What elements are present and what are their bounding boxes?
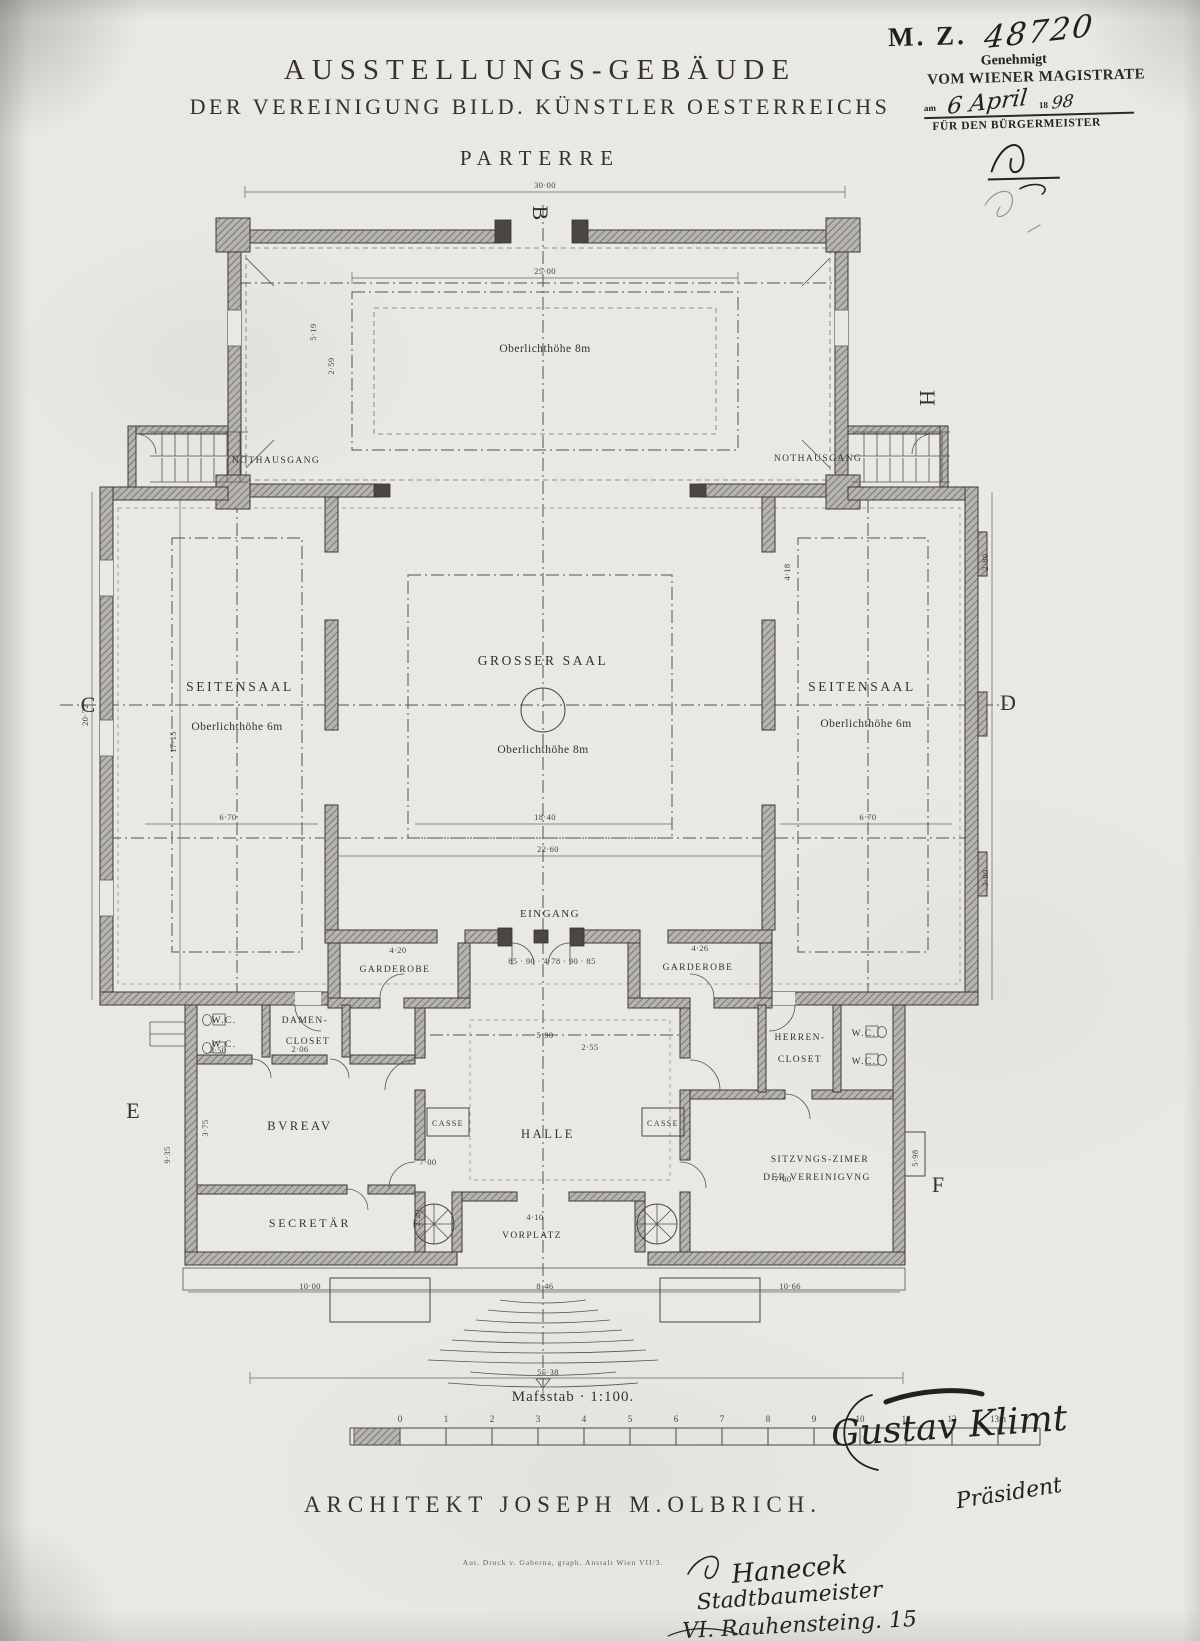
dimension-label: 8·46 bbox=[536, 1281, 553, 1291]
stamp-date-line: am 6 April 18 98 bbox=[924, 86, 1135, 119]
dimension-label: 2·06 bbox=[291, 1044, 308, 1054]
dimension-label: 4·18 bbox=[782, 563, 792, 580]
stamp-date-prefix: am bbox=[924, 103, 936, 113]
marker-d: D bbox=[1000, 690, 1016, 715]
grosser-saal-height-label: Oberlichthöhe 8m bbox=[497, 744, 588, 756]
wc-label: W.C. bbox=[212, 1016, 237, 1026]
centerlines bbox=[60, 205, 1008, 1385]
dimension-label: 5·19 bbox=[308, 323, 318, 340]
stamp-authority: VOM WIENER MAGISTRATE bbox=[927, 65, 1199, 89]
seitensaal-left-label: SEITENSAAL bbox=[186, 679, 294, 694]
dimension-label: 5·98 bbox=[910, 1149, 920, 1166]
builder-flourish bbox=[688, 1556, 718, 1578]
dimension-label: 9·35 bbox=[162, 1146, 172, 1163]
architect-credit: ARCHITEKT JOSEPH M.OLBRICH. bbox=[304, 1492, 822, 1517]
dimension-label: 85 · 90 · 4·78 · 90 · 85 bbox=[508, 956, 596, 966]
scale-tick-number: 0 bbox=[398, 1414, 403, 1424]
seitensaal-left-height-label: Oberlichthöhe 6m bbox=[191, 721, 282, 733]
wc-label: W.C. bbox=[852, 1029, 877, 1039]
damen-closet-label-1: DAMEN- bbox=[282, 1016, 328, 1026]
dimension-label: 7·00 bbox=[419, 1157, 436, 1167]
casse-left-label: CASSE bbox=[432, 1119, 464, 1128]
scale-tick-number: 7 bbox=[720, 1414, 725, 1424]
dimension-labels: 30·0025·005·192·5920·7217·1518·406·706·7… bbox=[80, 180, 990, 1377]
grosser-saal-label: GROSSER SAAL bbox=[478, 653, 609, 668]
garderobe-right-label: GARDEROBE bbox=[663, 963, 734, 973]
dimension-label: 55·38 bbox=[537, 1367, 559, 1377]
dimension-label: 22·60 bbox=[537, 844, 559, 854]
dimension-label: 4·26 bbox=[691, 943, 708, 953]
dimension-label: 5·90 bbox=[536, 1030, 553, 1040]
printer-imprint: Aut. Druck v. Gaberna, graph. Anstalt Wi… bbox=[463, 1558, 663, 1567]
scale-tick-number: 1 bbox=[444, 1414, 449, 1424]
dimension-label: 25·00 bbox=[534, 266, 556, 276]
stamp-year-handwritten: 98 bbox=[1051, 91, 1075, 113]
seitensaal-right-label: SEITENSAAL bbox=[808, 679, 916, 694]
scale-tick-number: 4 bbox=[582, 1414, 587, 1424]
stamp-date-handwritten: 6 April bbox=[946, 85, 1028, 120]
dimension-lines bbox=[92, 186, 992, 1384]
dimension-label: 2·20 bbox=[412, 1209, 422, 1226]
scale-label: Mafsstab · 1:100. bbox=[512, 1389, 634, 1405]
dimension-label: 18·40 bbox=[534, 812, 556, 822]
dimension-label: 10·66 bbox=[779, 1281, 801, 1291]
approval-stamp: M. Z. 48720 Genehmigt VOM WIENER MAGISTR… bbox=[888, 10, 1200, 207]
vorplatz-label: VORPLATZ bbox=[502, 1231, 562, 1241]
dimension-label: 10·00 bbox=[299, 1281, 321, 1291]
wc-label: W.C. bbox=[852, 1057, 877, 1067]
scale-tick-number: 5 bbox=[628, 1414, 633, 1424]
nothausgang-left-label: NOTHAUSGANG bbox=[232, 456, 320, 466]
dimension-label: 30·00 bbox=[534, 180, 556, 190]
dimension-label: 20·72 bbox=[80, 704, 90, 726]
scale-tick-number: 3 bbox=[536, 1414, 541, 1424]
marker-h: H bbox=[915, 390, 940, 406]
nothausgang-right-label: NOTHAUSGANG bbox=[774, 454, 862, 464]
garderobe-left-label: GARDEROBE bbox=[360, 965, 431, 975]
secretaer-label: SECRETÄR bbox=[269, 1216, 351, 1230]
dimension-label: 6·70 bbox=[859, 812, 876, 822]
dimension-label: 17·15 bbox=[168, 731, 178, 753]
scale-tick-number: 6 bbox=[674, 1414, 679, 1424]
casse-right-label: CASSE bbox=[647, 1119, 679, 1128]
dimension-label: 3·80 bbox=[980, 869, 990, 886]
dimension-label: 3·75 bbox=[200, 1119, 210, 1136]
dimension-label: 7·00 bbox=[774, 1174, 791, 1184]
stamp-number-handwritten: 48720 bbox=[982, 8, 1095, 56]
klimt-topbar bbox=[886, 1391, 982, 1402]
klimt-title: Präsident bbox=[953, 1473, 1064, 1515]
stamp-code: M. Z. bbox=[888, 20, 968, 52]
dimension-label: 2·80 bbox=[980, 553, 990, 570]
sitzungszimmer-label-1: SITZVNGS-ZIMER bbox=[771, 1155, 869, 1165]
dimension-label: 2·55 bbox=[581, 1042, 598, 1052]
official-signature bbox=[979, 133, 1091, 200]
seitensaal-right-height-label: Oberlichthöhe 6m bbox=[820, 718, 911, 730]
dimension-label: 2·59 bbox=[326, 357, 336, 374]
bureau-label: BVREAV bbox=[267, 1119, 332, 1133]
dimension-label: 2·50 bbox=[209, 1045, 226, 1055]
dimension-label: 4·20 bbox=[389, 945, 406, 955]
klimt-signature: Gustav Klimt bbox=[830, 1398, 1069, 1455]
scale-tick-number: 2 bbox=[490, 1414, 495, 1424]
scale-tick-number: 8 bbox=[766, 1414, 771, 1424]
top-hall-skylight-label: Oberlichthöhe 8m bbox=[499, 343, 590, 355]
marker-b: B bbox=[528, 206, 553, 221]
herren-closet-label-2: CLOSET bbox=[778, 1055, 822, 1065]
dimension-label: 4·10 bbox=[526, 1212, 543, 1222]
marker-e: E bbox=[126, 1098, 139, 1123]
stamp-year-print: 18 bbox=[1039, 100, 1048, 110]
marker-f: F bbox=[932, 1172, 944, 1197]
halle-label: HALLE bbox=[521, 1127, 575, 1141]
floor-plan-svg: Oberlichthöhe 8m NOTHAUSGANG NOTHAUSGANG… bbox=[0, 0, 1200, 1641]
eingang-label: EINGANG bbox=[520, 908, 580, 920]
scale-tick-number: 9 bbox=[812, 1414, 817, 1424]
herren-closet-label-1: HERREN- bbox=[775, 1033, 826, 1043]
dimension-label: 6·70 bbox=[219, 812, 236, 822]
